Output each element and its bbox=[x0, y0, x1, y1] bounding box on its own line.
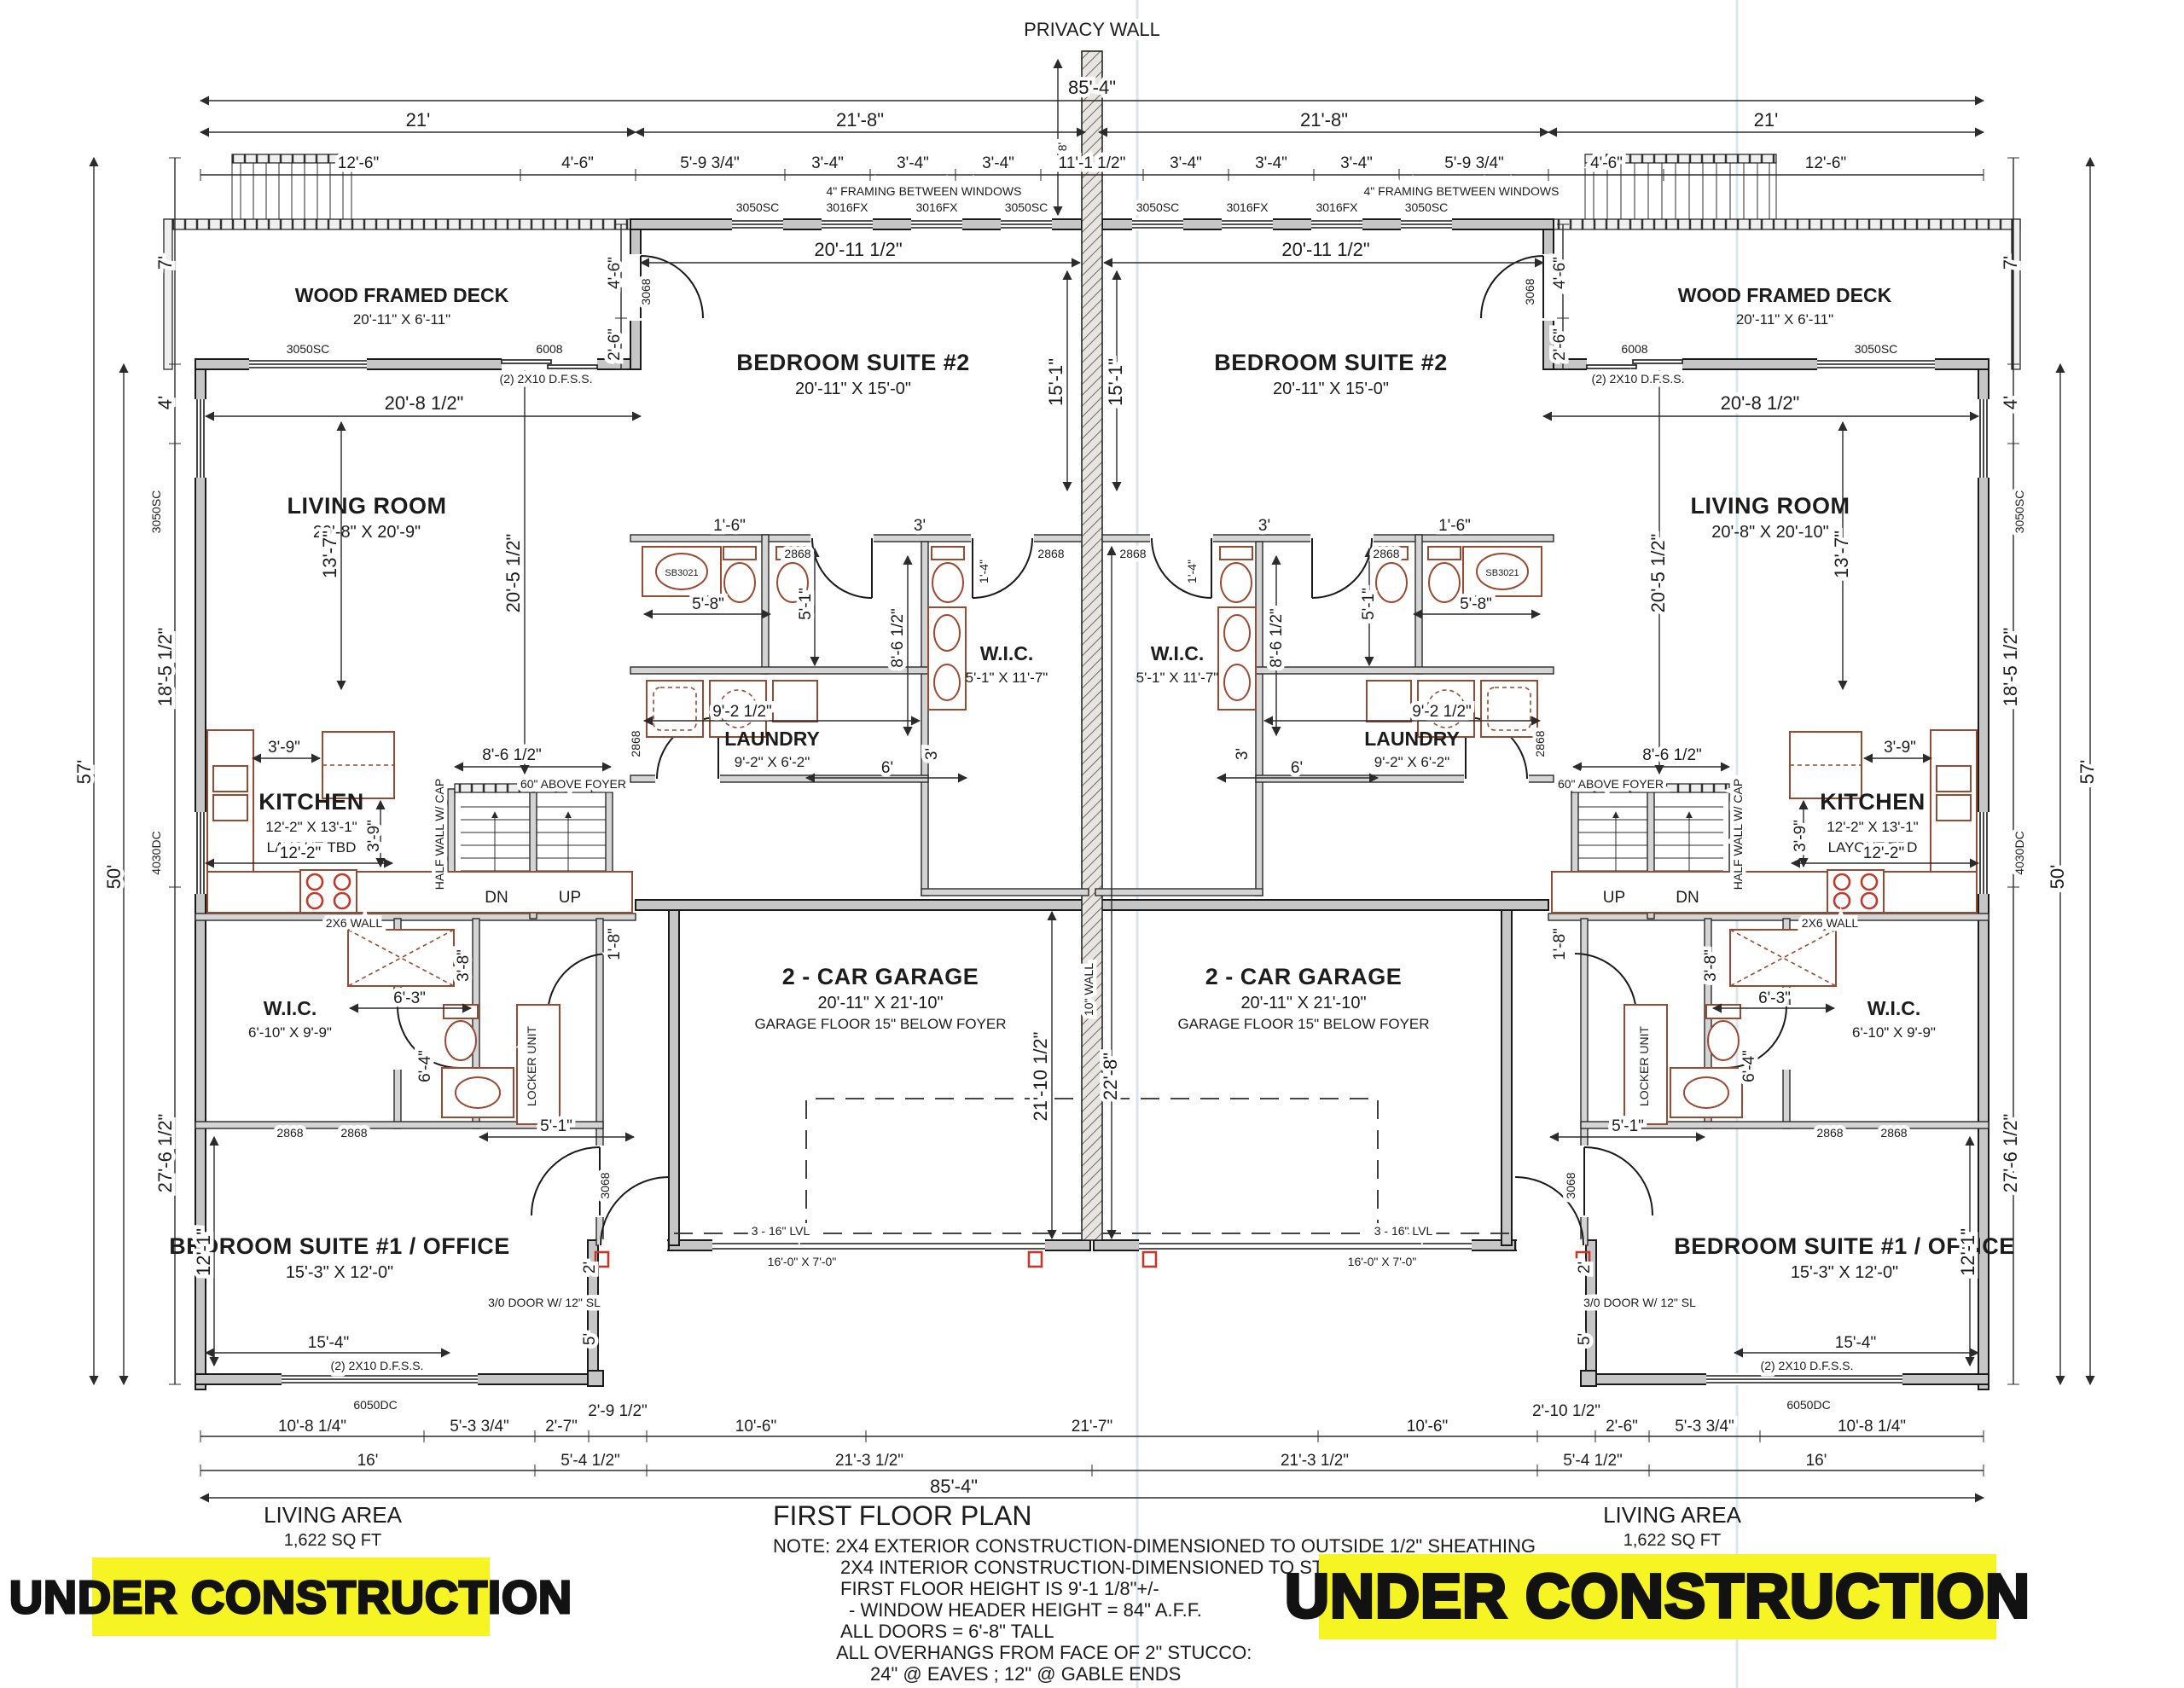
dim: 12'-1" bbox=[1957, 1228, 1978, 1276]
window-code: 6050DC bbox=[1786, 1398, 1830, 1412]
dim: 12'-2" bbox=[1863, 844, 1904, 862]
dim: 3'-9" bbox=[1884, 739, 1916, 757]
room-deck-name: WOOD FRAMED DECK bbox=[295, 284, 509, 306]
dim: 3'-8" bbox=[1702, 949, 1720, 982]
garage-door-size: 16'-0" X 7'-0" bbox=[1348, 1255, 1417, 1268]
note-half-wall: HALF WALL W/ CAP bbox=[1731, 779, 1745, 890]
dim: 6' bbox=[1291, 759, 1303, 777]
dim: 6'-3" bbox=[1758, 989, 1791, 1007]
dim: 8'-6 1/2" bbox=[482, 746, 542, 764]
note-locker: LOCKER UNIT bbox=[1637, 1025, 1651, 1106]
dim: 4'-6" bbox=[561, 154, 594, 172]
joist-note: (2) 2X10 D.F.S.S. bbox=[1592, 372, 1685, 386]
window-code: 3016FX bbox=[1226, 200, 1269, 214]
stair-up: UP bbox=[1603, 889, 1625, 907]
room-bedroom1-size: 15'-3" X 12'-0" bbox=[286, 1263, 393, 1282]
dim: 20'-5 1/2" bbox=[502, 534, 524, 613]
dim: 3' bbox=[923, 748, 941, 760]
room-bedroom2-name: BEDROOM SUITE #2 bbox=[1214, 350, 1448, 375]
dim: 2'-6" bbox=[1551, 328, 1569, 361]
room-bedroom2-size: 20'-11" X 15'-0" bbox=[795, 380, 911, 398]
window-code: 6050DC bbox=[353, 1398, 397, 1412]
beam-note: 3 - 16" LVL bbox=[1374, 1224, 1433, 1238]
garage-door-size: 16'-0" X 7'-0" bbox=[768, 1255, 837, 1268]
cabinet-code: SB3021 bbox=[1485, 568, 1519, 578]
room-garage-name: 2 - CAR GARAGE bbox=[782, 964, 979, 989]
door-code: 2868 bbox=[1880, 1126, 1907, 1140]
dim: 1'-6" bbox=[713, 517, 746, 535]
window-code: 3050SC bbox=[149, 490, 163, 534]
dim: 4'-6" bbox=[1551, 257, 1569, 289]
living-area-label: LIVING AREA bbox=[264, 1502, 402, 1528]
dim: 3'-4" bbox=[897, 154, 929, 172]
dim: 6'-3" bbox=[393, 989, 426, 1007]
door-code: 2868 bbox=[784, 547, 810, 560]
dim: 6'-4" bbox=[1740, 1050, 1758, 1082]
room-kitchen-name: KITCHEN bbox=[258, 789, 364, 815]
dim: 2'-9 1/2" bbox=[588, 1402, 648, 1420]
room-bedroom1-size: 15'-3" X 12'-0" bbox=[1791, 1263, 1898, 1282]
dim: 5'-1" bbox=[1360, 588, 1378, 620]
window-code: 3050SC bbox=[2013, 490, 2026, 534]
dim: 13'-7" bbox=[319, 531, 340, 578]
room-kitchen-size: 12'-2" X 13'-1" bbox=[265, 819, 357, 835]
room-deck-size: 20'-11" X 6'-11" bbox=[353, 311, 450, 328]
dim: 6'-4" bbox=[416, 1050, 434, 1082]
door-code: 2868 bbox=[1816, 1126, 1843, 1140]
dim: 5'-3 3/4" bbox=[450, 1418, 509, 1436]
door-code: 3068 bbox=[1564, 1172, 1577, 1198]
room-wic-front-name: W.I.C. bbox=[264, 997, 317, 1019]
room-laundry-name: LAUNDRY bbox=[1364, 728, 1460, 750]
dim: 10'-6" bbox=[735, 1418, 776, 1436]
banner-under-construction-right: UNDER CONSTRUCTION bbox=[1285, 1554, 2030, 1639]
window-code: 3050SC bbox=[1855, 342, 1898, 356]
dim: 15'-1" bbox=[1045, 358, 1066, 406]
window-code: 4030DC bbox=[2013, 831, 2026, 874]
dim: 3'-4" bbox=[1255, 154, 1287, 172]
door-code: 6008 bbox=[536, 342, 562, 356]
dim: 3'-8" bbox=[455, 949, 473, 982]
room-garage-name: 2 - CAR GARAGE bbox=[1205, 964, 1403, 989]
room-living-name: LIVING ROOM bbox=[288, 493, 447, 519]
room-deck-size: 20'-11" X 6'-11" bbox=[1736, 311, 1833, 328]
room-garage-size: 20'-11" X 21'-10" bbox=[817, 994, 943, 1012]
dim: 5'-8" bbox=[692, 595, 724, 613]
window-code: 3050SC bbox=[1405, 200, 1449, 214]
dim: 10'-8 1/4" bbox=[1838, 1418, 1906, 1436]
window-code: 3016FX bbox=[915, 200, 958, 214]
room-wic-front-name: W.I.C. bbox=[1867, 997, 1921, 1019]
window-code: 3050SC bbox=[287, 342, 330, 356]
dim: 16' bbox=[1806, 1452, 1827, 1470]
dim: 1'-8" bbox=[1551, 928, 1569, 960]
window-code: 3016FX bbox=[1316, 200, 1358, 214]
banner-under-construction-left: UNDER CONSTRUCTION bbox=[9, 1557, 572, 1636]
dim: 3'-4" bbox=[1340, 154, 1373, 172]
dim: 6' bbox=[881, 759, 893, 777]
dim: 15'-4" bbox=[308, 1334, 349, 1352]
front-door-note: 3/0 DOOR W/ 12" SL bbox=[1583, 1296, 1696, 1309]
room-laundry-name: LAUNDRY bbox=[724, 728, 820, 750]
dim: 1'-6" bbox=[1438, 517, 1471, 535]
room-kitchen-size: 12'-2" X 13'-1" bbox=[1827, 819, 1918, 835]
wall-note: 2X6 WALL bbox=[326, 916, 383, 930]
dim: 4' bbox=[2000, 396, 2021, 409]
dim: 11'-1 1/2" bbox=[1059, 154, 1126, 172]
dim: 16' bbox=[357, 1452, 379, 1470]
dim: 9'-2 1/2" bbox=[1412, 703, 1472, 721]
dim: 2' bbox=[581, 1262, 599, 1273]
dim: 50' bbox=[2047, 865, 2068, 890]
deck-left bbox=[164, 154, 641, 369]
cabinet-code: SB3021 bbox=[665, 568, 698, 578]
dim: 27'-6 1/2" bbox=[2000, 1114, 2021, 1193]
dim: 57' bbox=[73, 760, 95, 785]
dim: 2'-10 1/2" bbox=[1532, 1402, 1600, 1420]
dim: 5'-3 3/4" bbox=[1675, 1418, 1734, 1436]
dim: 5'-1" bbox=[1612, 1117, 1644, 1135]
door-code: 3068 bbox=[639, 278, 653, 305]
dim: 3'-9" bbox=[1792, 820, 1809, 852]
room-wic-front-size: 6'-10" X 9'-9" bbox=[1852, 1024, 1936, 1041]
dim: 21'-8" bbox=[1300, 109, 1348, 131]
wall-note: 10" WALL bbox=[1082, 963, 1095, 1016]
dim: 5'-1" bbox=[540, 1117, 572, 1135]
dim: 21'-3 1/2" bbox=[1281, 1452, 1349, 1470]
dim: 5'-1" bbox=[797, 588, 815, 620]
dim: 18'-5 1/2" bbox=[2000, 628, 2021, 707]
room-wic-center-size: 5'-1" X 11'-7" bbox=[966, 670, 1048, 686]
dim-overall-top: 85'-4" bbox=[1068, 77, 1116, 98]
framing-note: 4" FRAMING BETWEEN WINDOWS bbox=[827, 184, 1022, 198]
dim: 3'-9" bbox=[365, 820, 383, 852]
note-line: NOTE: 2X4 EXTERIOR CONSTRUCTION-DIMENSIO… bbox=[773, 1535, 1536, 1557]
dim: 20'-5 1/2" bbox=[1647, 534, 1669, 613]
banner-text: UNDER CONSTRUCTION bbox=[9, 1572, 572, 1623]
dim: 12'-6" bbox=[338, 154, 379, 172]
living-area-value: 1,622 SQ FT bbox=[284, 1531, 382, 1550]
floor-plan-drawing: PRIVACY WALL 85'-4" 21' 21'-8" 21'-8" 21… bbox=[0, 0, 2184, 1688]
garage-door-markers bbox=[595, 1252, 1589, 1267]
dim: 2'-7" bbox=[545, 1418, 578, 1436]
joist-note: (2) 2X10 D.F.S.S. bbox=[1761, 1359, 1854, 1372]
dim: 12'-2" bbox=[280, 844, 321, 862]
dim: 21' bbox=[406, 109, 431, 131]
dim: 22'-8" bbox=[1100, 1053, 1121, 1100]
dim: 5' bbox=[581, 1333, 599, 1345]
dim: 3' bbox=[914, 517, 926, 535]
dim: 9'-2 1/2" bbox=[712, 703, 772, 721]
dim: 3'-9" bbox=[268, 739, 300, 757]
wall-note: 2X6 WALL bbox=[1802, 916, 1859, 930]
dim: 3' bbox=[1234, 748, 1252, 760]
dim: 7' bbox=[2000, 256, 2021, 270]
window-code: 4030DC bbox=[149, 831, 163, 874]
note-line: 24" @ EAVES ; 12" @ GABLE ENDS bbox=[870, 1663, 1181, 1685]
room-kitchen-name: KITCHEN bbox=[1820, 789, 1926, 815]
note-half-wall: HALF WALL W/ CAP bbox=[433, 779, 446, 890]
dim: 15'-1" bbox=[1105, 358, 1126, 406]
stair-dn: DN bbox=[485, 889, 508, 907]
dim: 5'-4 1/2" bbox=[561, 1452, 620, 1470]
dim-overall-bottom: 85'-4" bbox=[930, 1476, 978, 1497]
dim: 2'-6" bbox=[606, 328, 624, 361]
beam-note: 3 - 16" LVL bbox=[752, 1224, 810, 1238]
note-line: ALL DOORS = 6'-8" TALL bbox=[840, 1621, 1054, 1642]
deck-right bbox=[1543, 154, 2020, 369]
page-title: FIRST FLOOR PLAN bbox=[773, 1500, 1031, 1531]
door-code: 2868 bbox=[276, 1126, 303, 1140]
dim: 2' bbox=[1576, 1262, 1594, 1273]
door-code: 2868 bbox=[1533, 730, 1547, 757]
door-code: 3068 bbox=[598, 1172, 612, 1198]
framing-note: 4" FRAMING BETWEEN WINDOWS bbox=[1364, 184, 1560, 198]
living-area-label: LIVING AREA bbox=[1603, 1502, 1741, 1528]
door-code: 2868 bbox=[1037, 547, 1064, 560]
dim: 1'-8" bbox=[606, 928, 624, 960]
door-code: 2868 bbox=[1373, 547, 1399, 560]
dim: 4' bbox=[154, 396, 176, 409]
room-laundry-size: 9'-2" X 6'-2" bbox=[1374, 754, 1450, 770]
dim: 27'-6 1/2" bbox=[154, 1114, 176, 1193]
dim: 2'-6" bbox=[1606, 1418, 1638, 1436]
dim: 13'-7" bbox=[1831, 531, 1852, 578]
room-wic-center-name: W.I.C. bbox=[980, 642, 1034, 664]
dim: 50' bbox=[103, 865, 125, 890]
note-line: ALL OVERHANGS FROM FACE OF 2" STUCCO: bbox=[836, 1642, 1252, 1663]
dim: 1'-4" bbox=[977, 560, 990, 583]
dim: 8' bbox=[1055, 142, 1069, 151]
dim: 8'-6 1/2" bbox=[889, 608, 907, 668]
exterior-walls bbox=[195, 51, 1989, 1389]
room-bedroom2-size: 20'-11" X 15'-0" bbox=[1273, 380, 1389, 398]
dim: 10'-8 1/4" bbox=[278, 1418, 346, 1436]
window-code: 3016FX bbox=[826, 200, 868, 214]
dim: 5'-4 1/2" bbox=[1563, 1452, 1623, 1470]
dim: 20'-11 1/2" bbox=[1281, 239, 1369, 260]
note-locker: LOCKER UNIT bbox=[525, 1025, 538, 1106]
note-line: FIRST FLOOR HEIGHT IS 9'-1 1/8"+/- bbox=[840, 1578, 1159, 1599]
dim: 8'-6 1/2" bbox=[1642, 746, 1702, 764]
dim: 8'-6 1/2" bbox=[1268, 608, 1286, 668]
room-deck-name: WOOD FRAMED DECK bbox=[1678, 284, 1892, 306]
door-code: 2868 bbox=[1119, 547, 1146, 560]
door-code: 2868 bbox=[629, 730, 642, 757]
dim: 20'-11 1/2" bbox=[814, 239, 902, 260]
dim: 57' bbox=[2077, 760, 2098, 785]
dim: 5' bbox=[1576, 1333, 1594, 1345]
dim: 4'-6" bbox=[606, 257, 624, 289]
door-code: 2868 bbox=[340, 1126, 367, 1140]
stair-up: UP bbox=[559, 889, 581, 907]
dim: 3' bbox=[1258, 517, 1270, 535]
door-code: 3068 bbox=[1523, 278, 1536, 305]
dim: 12'-1" bbox=[193, 1228, 214, 1276]
room-garage-size: 20'-11" X 21'-10" bbox=[1240, 994, 1366, 1012]
stair-dn: DN bbox=[1676, 889, 1699, 907]
room-wic-center-size: 5'-1" X 11'-7" bbox=[1136, 670, 1219, 686]
dim: 7' bbox=[154, 256, 176, 270]
room-bedroom1-name: BEDROOM SUITE #1 / OFFICE bbox=[169, 1233, 510, 1259]
dim: 12'-6" bbox=[1805, 154, 1846, 172]
dim: 15'-4" bbox=[1835, 1334, 1876, 1352]
dim: 5'-9 3/4" bbox=[1444, 154, 1504, 172]
note-above-foyer: 60" ABOVE FOYER bbox=[1558, 777, 1664, 791]
joist-note: (2) 2X10 D.F.S.S. bbox=[331, 1359, 424, 1372]
dim: 5'-9 3/4" bbox=[680, 154, 740, 172]
dim: 21'-3 1/2" bbox=[835, 1452, 903, 1470]
dim: 20'-8 1/2" bbox=[385, 392, 464, 414]
note-above-foyer: 60" ABOVE FOYER bbox=[520, 777, 626, 791]
room-wic-center-name: W.I.C. bbox=[1151, 642, 1205, 664]
joist-note: (2) 2X10 D.F.S.S. bbox=[500, 372, 593, 386]
dim: 3'-4" bbox=[982, 154, 1014, 172]
dim: 3'-4" bbox=[811, 154, 844, 172]
room-living-size: 20'-8" X 20'-10" bbox=[1711, 523, 1828, 542]
window-code: 3050SC bbox=[1136, 200, 1180, 214]
window-code: 3050SC bbox=[736, 200, 780, 214]
living-area-value: 1,622 SQ FT bbox=[1623, 1531, 1722, 1550]
privacy-wall-label: PRIVACY WALL bbox=[1024, 19, 1160, 40]
room-bedroom2-name: BEDROOM SUITE #2 bbox=[736, 350, 970, 375]
dim: 1'-4" bbox=[1185, 560, 1199, 583]
room-wic-front-size: 6'-10" X 9'-9" bbox=[248, 1024, 332, 1041]
floor-plan-page: PRIVACY WALL 85'-4" 21' 21'-8" 21'-8" 21… bbox=[0, 0, 2184, 1688]
room-garage-note: GARAGE FLOOR 15" BELOW FOYER bbox=[1177, 1016, 1429, 1032]
dim: 21'-8" bbox=[836, 109, 884, 131]
dim: 5'-8" bbox=[1460, 595, 1492, 613]
dim: 21'-7" bbox=[1072, 1418, 1112, 1436]
window-code: 3050SC bbox=[1005, 200, 1048, 214]
dim: 18'-5 1/2" bbox=[154, 628, 176, 707]
dim: 21'-10 1/2" bbox=[1030, 1032, 1051, 1122]
note-line: - WINDOW HEADER HEIGHT = 84" A.F.F. bbox=[849, 1599, 1202, 1621]
door-code: 6008 bbox=[1621, 342, 1647, 356]
dim: 3'-4" bbox=[1170, 154, 1202, 172]
dim: 4'-6" bbox=[1590, 154, 1623, 172]
dim: 21' bbox=[1754, 109, 1779, 131]
front-door-note: 3/0 DOOR W/ 12" SL bbox=[488, 1296, 601, 1309]
dim: 10'-6" bbox=[1407, 1418, 1448, 1436]
room-garage-note: GARAGE FLOOR 15" BELOW FOYER bbox=[754, 1016, 1006, 1032]
room-living-name: LIVING ROOM bbox=[1691, 493, 1850, 519]
room-laundry-size: 9'-2" X 6'-2" bbox=[735, 754, 810, 770]
dim: 20'-8 1/2" bbox=[1721, 392, 1800, 414]
banner-text: UNDER CONSTRUCTION bbox=[1285, 1563, 2030, 1631]
